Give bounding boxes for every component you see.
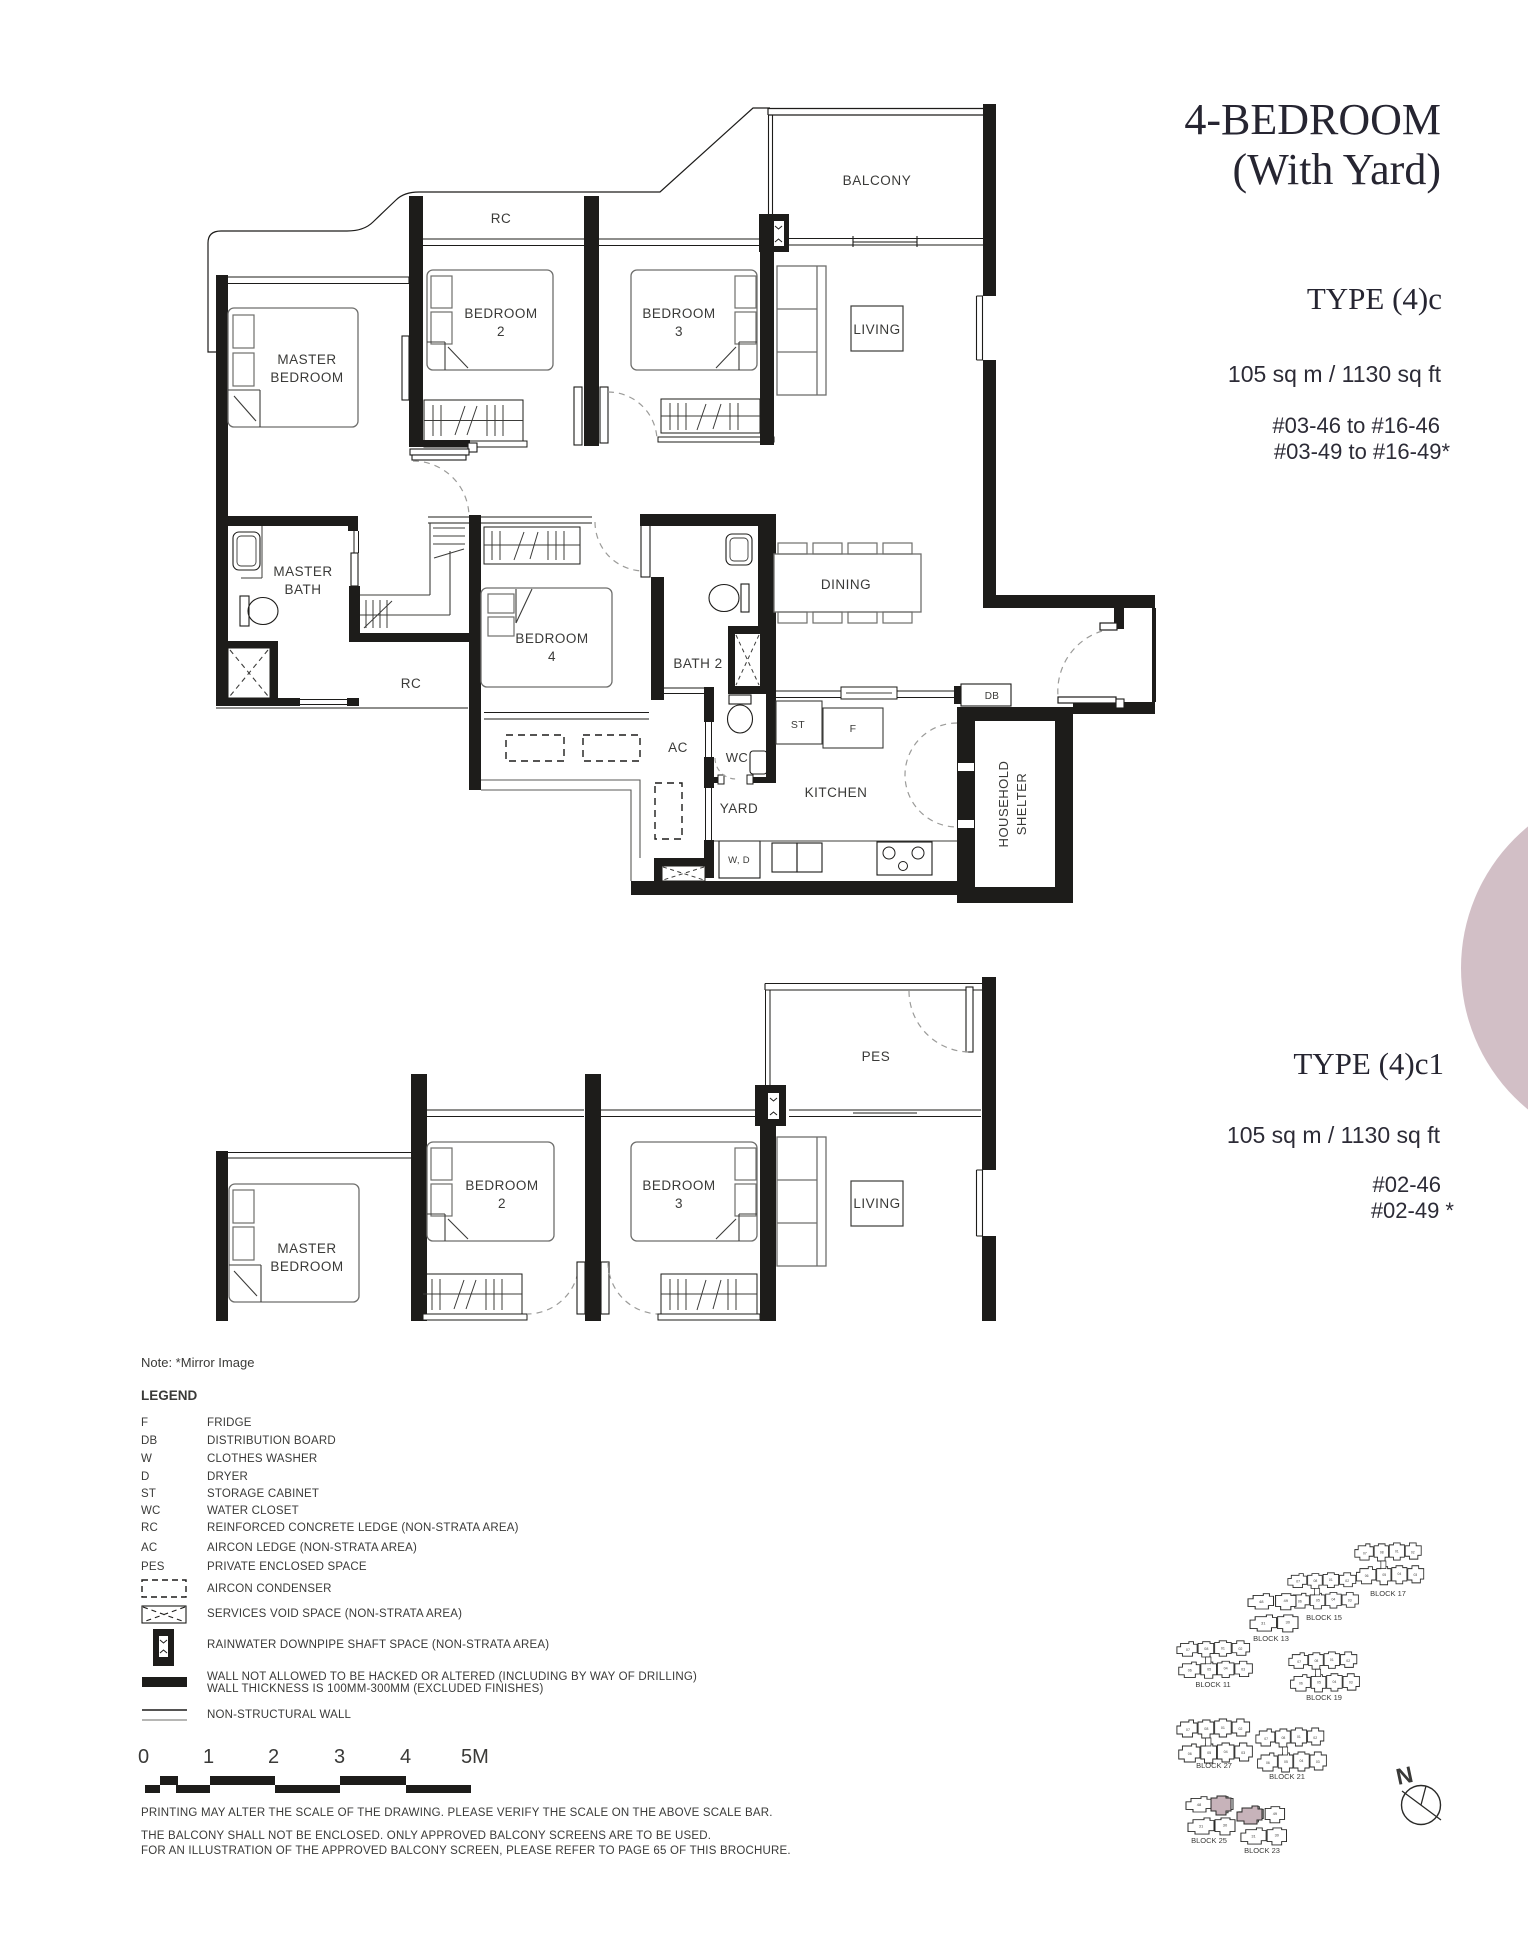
svg-text:BLOCK 27: BLOCK 27 [1196, 1761, 1232, 1770]
svg-text:SHELTER: SHELTER [1014, 773, 1029, 836]
svg-text:BLOCK 21: BLOCK 21 [1269, 1772, 1305, 1781]
svg-text:DB: DB [985, 691, 1000, 702]
svg-text:CLOTHES WASHER: CLOTHES WASHER [207, 1453, 317, 1465]
svg-text:BEDROOM: BEDROOM [642, 306, 715, 321]
svg-text:WALL THICKNESS IS 100MM-300MM: WALL THICKNESS IS 100MM-300MM (EXCLUDED … [207, 1683, 544, 1695]
svg-text:#03-46 to #16-46: #03-46 to #16-46 [1272, 413, 1440, 438]
svg-text:SERVICES VOID SPACE (NON-STRAT: SERVICES VOID SPACE (NON-STRATA AREA) [207, 1608, 462, 1620]
svg-text:ST: ST [141, 1488, 156, 1500]
svg-text:4-BEDROOM: 4-BEDROOM [1184, 95, 1441, 144]
svg-text:1: 1 [203, 1746, 214, 1768]
svg-text:0: 0 [138, 1746, 149, 1768]
svg-text:YARD: YARD [720, 801, 759, 816]
svg-text:AC: AC [141, 1542, 157, 1554]
svg-text:D: D [141, 1471, 150, 1483]
svg-text:#03-49 to #16-49*: #03-49 to #16-49* [1274, 439, 1451, 464]
svg-text:BEDROOM: BEDROOM [642, 1178, 715, 1193]
svg-text:BLOCK 25: BLOCK 25 [1191, 1836, 1227, 1845]
svg-text:DISTRIBUTION BOARD: DISTRIBUTION BOARD [207, 1435, 336, 1447]
svg-text:RAINWATER DOWNPIPE SHAFT SPACE: RAINWATER DOWNPIPE SHAFT SPACE (NON-STRA… [207, 1639, 549, 1651]
svg-text:F: F [850, 723, 857, 735]
svg-text:BATH 2: BATH 2 [673, 656, 722, 671]
svg-text:(With Yard): (With Yard) [1233, 145, 1441, 194]
svg-text:LEGEND: LEGEND [141, 1388, 198, 1403]
svg-text:PRIVATE ENCLOSED SPACE: PRIVATE ENCLOSED SPACE [207, 1561, 367, 1573]
svg-text:RC: RC [491, 211, 512, 226]
svg-text:#02-49 *: #02-49 * [1371, 1198, 1455, 1223]
svg-text:KITCHEN: KITCHEN [805, 785, 868, 800]
svg-text:MASTER: MASTER [277, 1241, 336, 1256]
svg-text:THE BALCONY SHALL NOT BE ENCLO: THE BALCONY SHALL NOT BE ENCLOSED. ONLY … [141, 1830, 711, 1842]
svg-text:PES: PES [862, 1049, 891, 1064]
svg-text:AIRCON CONDENSER: AIRCON CONDENSER [207, 1583, 332, 1595]
svg-text:LIVING: LIVING [853, 322, 900, 337]
svg-text:BEDROOM: BEDROOM [270, 1259, 343, 1274]
svg-text:REINFORCED CONCRETE LEDGE (NON: REINFORCED CONCRETE LEDGE (NON-STRATA AR… [207, 1522, 519, 1534]
svg-text:BLOCK 23: BLOCK 23 [1244, 1846, 1280, 1855]
svg-text:BEDROOM: BEDROOM [515, 631, 588, 646]
svg-text:PES: PES [141, 1561, 165, 1573]
svg-text:BEDROOM: BEDROOM [270, 370, 343, 385]
svg-text:LIVING: LIVING [853, 1196, 900, 1211]
svg-text:BLOCK 17: BLOCK 17 [1370, 1589, 1406, 1598]
svg-text:FRIDGE: FRIDGE [207, 1417, 252, 1429]
svg-text:AC: AC [668, 740, 688, 755]
svg-text:WC: WC [141, 1505, 161, 1517]
svg-text:FOR AN ILLUSTRATION OF THE APP: FOR AN ILLUSTRATION OF THE APPROVED BALC… [141, 1845, 791, 1857]
svg-text:W, D: W, D [728, 855, 750, 866]
svg-text:3: 3 [675, 324, 683, 339]
svg-text:Note: *Mirror Image: Note: *Mirror Image [141, 1355, 254, 1370]
svg-text:BLOCK 11: BLOCK 11 [1195, 1680, 1230, 1689]
svg-text:F: F [141, 1417, 148, 1429]
svg-text:105 sq m / 1130 sq ft: 105 sq m / 1130 sq ft [1227, 1122, 1441, 1148]
svg-text:AIRCON LEDGE (NON-STRATA AREA): AIRCON LEDGE (NON-STRATA AREA) [207, 1542, 417, 1554]
svg-text:TYPE (4)c1: TYPE (4)c1 [1293, 1046, 1444, 1081]
svg-text:WATER CLOSET: WATER CLOSET [207, 1505, 299, 1517]
svg-text:2: 2 [497, 324, 505, 339]
svg-text:#02-46: #02-46 [1372, 1172, 1441, 1197]
svg-text:ST: ST [791, 719, 805, 731]
svg-text:4: 4 [400, 1746, 411, 1768]
svg-text:RC: RC [401, 676, 422, 691]
svg-text:3: 3 [675, 1196, 683, 1211]
svg-text:W: W [141, 1453, 152, 1465]
svg-text:STORAGE CABINET: STORAGE CABINET [207, 1488, 319, 1500]
svg-text:105 sq m / 1130 sq ft: 105 sq m / 1130 sq ft [1228, 361, 1442, 387]
svg-text:BALCONY: BALCONY [843, 173, 912, 188]
svg-text:3: 3 [334, 1746, 345, 1768]
svg-text:BLOCK 19: BLOCK 19 [1306, 1693, 1342, 1702]
svg-text:2: 2 [268, 1746, 279, 1768]
svg-text:PRINTING MAY ALTER THE SCALE O: PRINTING MAY ALTER THE SCALE OF THE DRAW… [141, 1807, 773, 1819]
svg-text:BLOCK 15: BLOCK 15 [1306, 1613, 1342, 1622]
svg-text:DB: DB [141, 1435, 158, 1447]
svg-text:MASTER: MASTER [273, 564, 332, 579]
svg-text:BEDROOM: BEDROOM [464, 306, 537, 321]
svg-text:WC: WC [726, 750, 748, 765]
svg-text:BEDROOM: BEDROOM [465, 1178, 538, 1193]
svg-text:DRYER: DRYER [207, 1471, 248, 1483]
svg-text:MASTER: MASTER [277, 352, 336, 367]
svg-text:RC: RC [141, 1522, 158, 1534]
svg-text:5M: 5M [461, 1746, 489, 1768]
svg-text:4: 4 [548, 649, 556, 664]
svg-text:BLOCK 13: BLOCK 13 [1253, 1634, 1289, 1643]
svg-text:WALL NOT ALLOWED TO BE HACKED: WALL NOT ALLOWED TO BE HACKED OR ALTERED… [207, 1671, 697, 1683]
svg-text:2: 2 [498, 1196, 506, 1211]
svg-text:NON-STRUCTURAL WALL: NON-STRUCTURAL WALL [207, 1709, 352, 1721]
svg-text:HOUSEHOLD: HOUSEHOLD [996, 761, 1011, 848]
svg-text:BATH: BATH [284, 582, 321, 597]
svg-text:DINING: DINING [821, 577, 871, 592]
svg-text:TYPE (4)c: TYPE (4)c [1307, 281, 1442, 316]
